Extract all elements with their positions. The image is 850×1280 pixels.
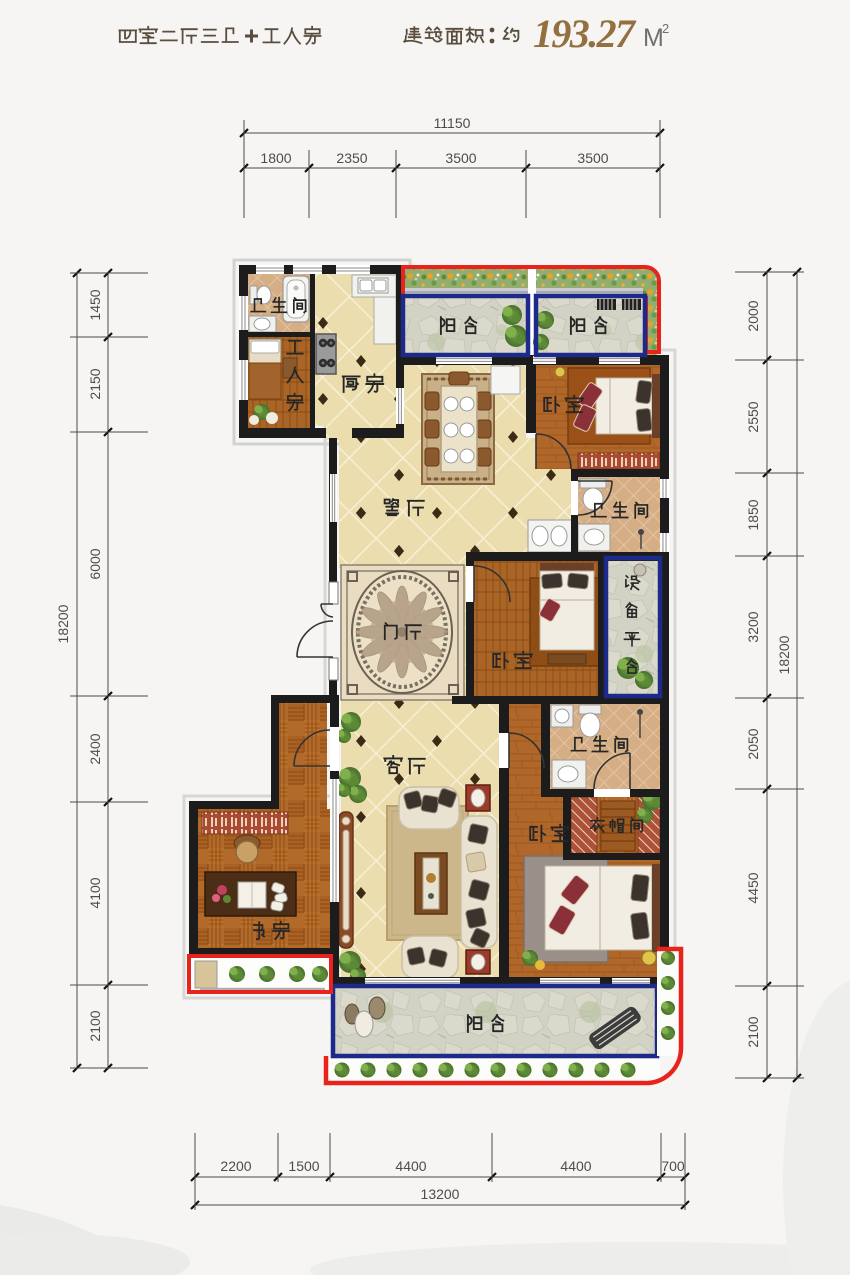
svg-text:11150: 11150 xyxy=(434,115,471,131)
svg-text:2150: 2150 xyxy=(87,368,103,399)
svg-text:2050: 2050 xyxy=(745,728,761,759)
svg-text:6000: 6000 xyxy=(87,548,103,579)
svg-text:13200: 13200 xyxy=(421,1186,460,1202)
svg-text:4400: 4400 xyxy=(560,1158,591,1174)
svg-text:1450: 1450 xyxy=(87,289,103,320)
svg-text:2400: 2400 xyxy=(87,733,103,764)
svg-text:4400: 4400 xyxy=(395,1158,426,1174)
svg-text:18200: 18200 xyxy=(55,604,71,643)
svg-text:193.27: 193.27 xyxy=(533,11,637,56)
svg-text:18200: 18200 xyxy=(776,635,792,674)
svg-text:2000: 2000 xyxy=(745,300,761,331)
svg-text:2: 2 xyxy=(662,21,669,36)
svg-text:2550: 2550 xyxy=(745,401,761,432)
svg-text:2350: 2350 xyxy=(336,150,367,166)
svg-text:3500: 3500 xyxy=(445,150,476,166)
svg-text:700: 700 xyxy=(661,1158,685,1174)
svg-text:2200: 2200 xyxy=(220,1158,251,1174)
svg-text:1500: 1500 xyxy=(288,1158,319,1174)
svg-text:1850: 1850 xyxy=(745,499,761,530)
svg-text:M: M xyxy=(643,24,664,52)
svg-text:4100: 4100 xyxy=(87,877,103,908)
svg-text:1800: 1800 xyxy=(260,150,291,166)
svg-text:4450: 4450 xyxy=(745,872,761,903)
svg-text:3200: 3200 xyxy=(745,611,761,642)
svg-text:2100: 2100 xyxy=(745,1016,761,1047)
svg-text:3500: 3500 xyxy=(577,150,608,166)
svg-text:2100: 2100 xyxy=(87,1010,103,1041)
